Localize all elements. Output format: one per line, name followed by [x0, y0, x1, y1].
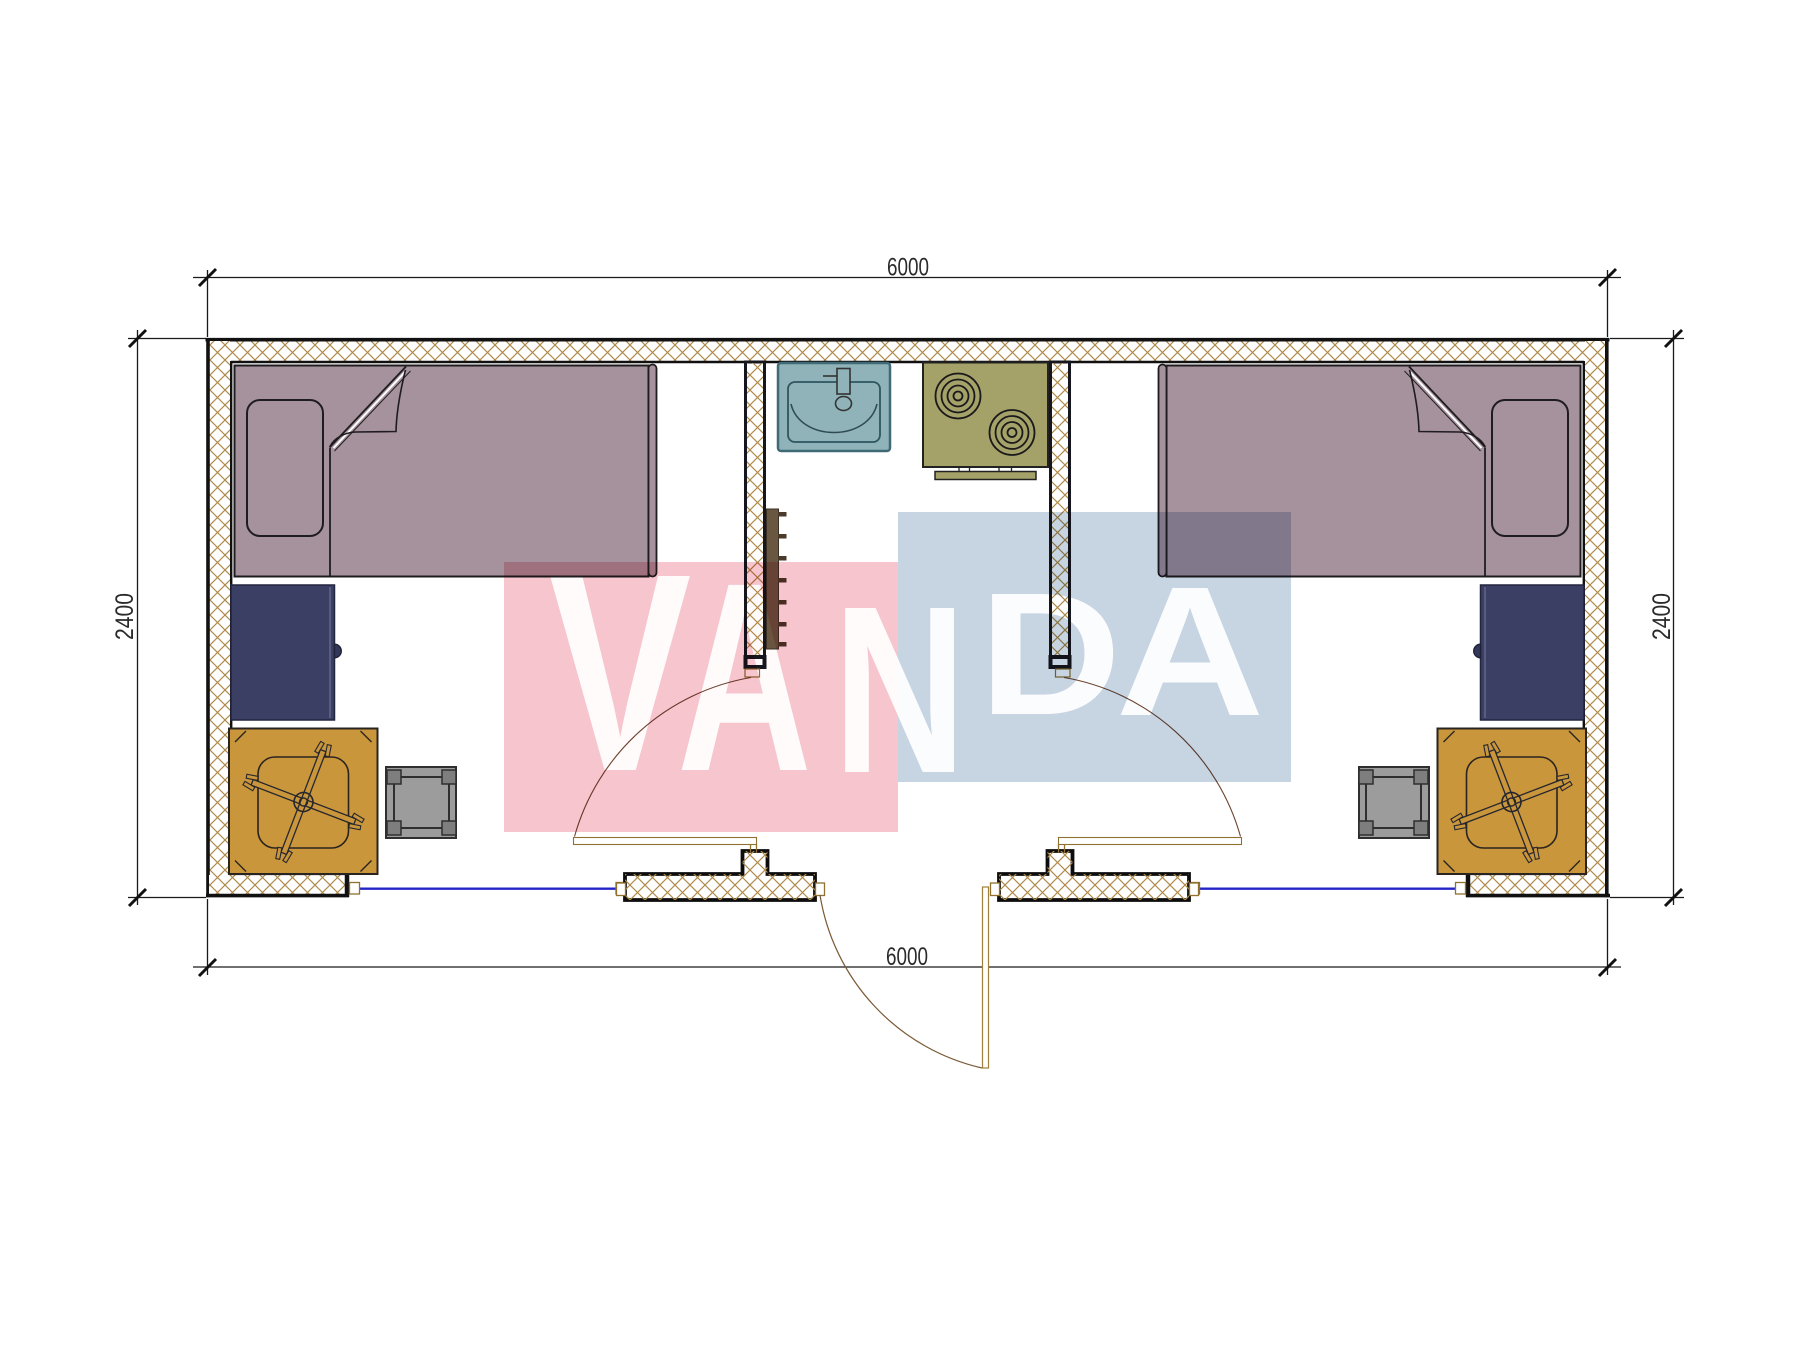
svg-text:2400: 2400	[1648, 593, 1676, 640]
svg-text:6000: 6000	[886, 943, 928, 971]
svg-text:6000: 6000	[887, 254, 929, 282]
svg-text:2400: 2400	[111, 593, 139, 640]
